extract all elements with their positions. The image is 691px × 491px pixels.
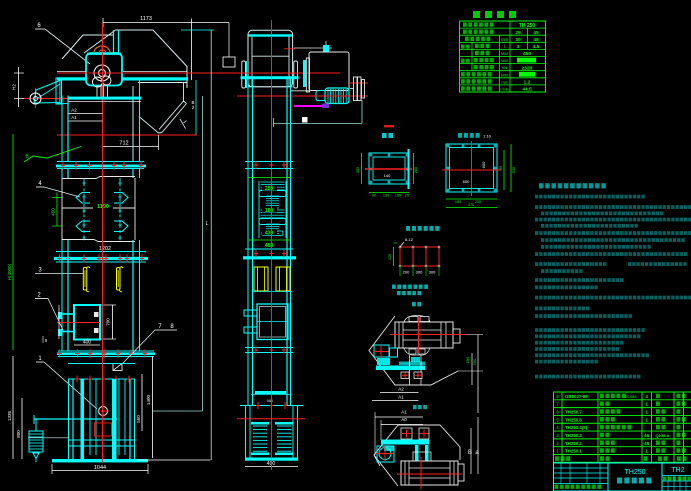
svg-text:TH250.4(5): TH250.4(5) <box>565 425 588 430</box>
svg-text:488: 488 <box>265 243 274 249</box>
svg-text:TH250.7: TH250.7 <box>565 410 582 415</box>
svg-text:TH250.2: TH250.2 <box>565 441 582 446</box>
svg-text:TH2: TH2 <box>671 467 684 474</box>
svg-text:1: 1 <box>556 449 559 454</box>
svg-text:712: 712 <box>119 141 128 147</box>
svg-text:45: 45 <box>533 30 539 36</box>
svg-text:L: L <box>206 221 209 227</box>
svg-text:600: 600 <box>463 179 470 184</box>
svg-text:mm: mm <box>501 37 508 42</box>
svg-text:150: 150 <box>395 194 401 198</box>
svg-text:150: 150 <box>383 194 389 198</box>
svg-text:TH250: TH250 <box>624 469 645 476</box>
svg-text:280: 280 <box>414 167 418 173</box>
svg-text:7: 7 <box>556 402 559 407</box>
svg-text:1: 1 <box>645 417 648 422</box>
svg-text:700: 700 <box>106 318 111 326</box>
svg-text:1: 1 <box>645 449 648 454</box>
svg-text:550: 550 <box>136 415 141 423</box>
svg-text:1173: 1173 <box>140 16 152 22</box>
svg-text:1:10: 1:10 <box>483 134 492 139</box>
svg-text:4: 4 <box>556 425 559 430</box>
svg-text:1: 1 <box>645 410 648 415</box>
svg-text:l: l <box>504 44 505 49</box>
svg-text:5: 5 <box>556 417 559 422</box>
svg-text:TH250.6: TH250.6 <box>565 417 582 422</box>
svg-text:420: 420 <box>388 254 392 260</box>
svg-text:48: 48 <box>533 37 539 43</box>
svg-text:550: 550 <box>472 358 477 365</box>
svg-text:300: 300 <box>416 270 423 275</box>
svg-text:20: 20 <box>405 194 409 198</box>
svg-text:150: 150 <box>455 200 461 204</box>
svg-text:3: 3 <box>556 433 559 438</box>
svg-text:1.2: 1.2 <box>524 80 531 86</box>
svg-text:II: II <box>45 338 48 343</box>
svg-text:A2: A2 <box>398 387 404 392</box>
svg-text:400: 400 <box>83 340 92 346</box>
svg-text:A1: A1 <box>398 395 404 400</box>
svg-text:1: 1 <box>645 402 648 407</box>
svg-text:600: 600 <box>481 161 486 168</box>
svg-text:r/min: r/min <box>501 88 509 92</box>
svg-text:90: 90 <box>372 194 376 198</box>
svg-text:A2: A2 <box>71 108 77 113</box>
svg-text:450: 450 <box>51 208 56 216</box>
svg-text:TH 250: TH 250 <box>519 23 536 29</box>
svg-text:80: 80 <box>499 166 503 170</box>
svg-text:MM: MM <box>501 51 508 56</box>
svg-text:1335: 1335 <box>7 410 12 421</box>
svg-text:1044: 1044 <box>94 465 106 471</box>
svg-text:4.5: 4.5 <box>533 44 540 50</box>
svg-text:3: 3 <box>517 44 520 50</box>
svg-text:GB8027-88: GB8027-88 <box>565 394 588 399</box>
svg-text:Q235-A: Q235-A <box>655 433 669 438</box>
svg-text:TH250.3: TH250.3 <box>565 433 582 438</box>
svg-text:25: 25 <box>515 30 521 36</box>
svg-text:8: 8 <box>556 394 559 399</box>
svg-text:200: 200 <box>403 270 410 275</box>
svg-text:800: 800 <box>16 430 21 438</box>
svg-text:20X85: 20X85 <box>625 394 637 399</box>
svg-text:H(4000): H(4000) <box>7 263 12 280</box>
svg-text:1400: 1400 <box>146 394 151 405</box>
svg-text:350: 350 <box>356 167 360 173</box>
svg-text:KN: KN <box>502 65 508 70</box>
svg-text:430: 430 <box>265 231 274 237</box>
svg-text:M8: M8 <box>267 398 273 403</box>
svg-text:m/s: m/s <box>501 80 507 84</box>
svg-text:H2: H2 <box>12 84 17 90</box>
svg-text:200: 200 <box>475 200 481 204</box>
svg-text:6: 6 <box>556 410 559 415</box>
svg-text:MM: MM <box>501 58 508 63</box>
svg-text:A1: A1 <box>401 410 407 415</box>
svg-text:30: 30 <box>515 37 521 43</box>
svg-text:MM: MM <box>501 72 508 77</box>
svg-text:46: 46 <box>644 433 650 438</box>
svg-text:4: 4 <box>645 394 648 399</box>
svg-text:180: 180 <box>265 208 274 214</box>
svg-text:48: 48 <box>644 441 650 446</box>
svg-text:2: 2 <box>556 441 559 446</box>
svg-text:A0: A0 <box>401 417 407 422</box>
svg-text:530: 530 <box>512 167 516 173</box>
svg-text:≥320: ≥320 <box>522 65 533 71</box>
svg-text:470: 470 <box>468 203 474 207</box>
svg-text:300: 300 <box>429 270 436 275</box>
svg-text:TH250.1: TH250.1 <box>565 449 582 454</box>
svg-text:44.5: 44.5 <box>522 87 532 93</box>
svg-text:450: 450 <box>523 51 531 57</box>
svg-text:A1: A1 <box>71 115 77 120</box>
svg-text:8-12: 8-12 <box>405 237 414 242</box>
svg-text:290: 290 <box>465 356 470 363</box>
svg-text:B: B <box>468 450 472 456</box>
svg-text:250: 250 <box>265 186 274 192</box>
svg-text:140: 140 <box>384 173 391 178</box>
